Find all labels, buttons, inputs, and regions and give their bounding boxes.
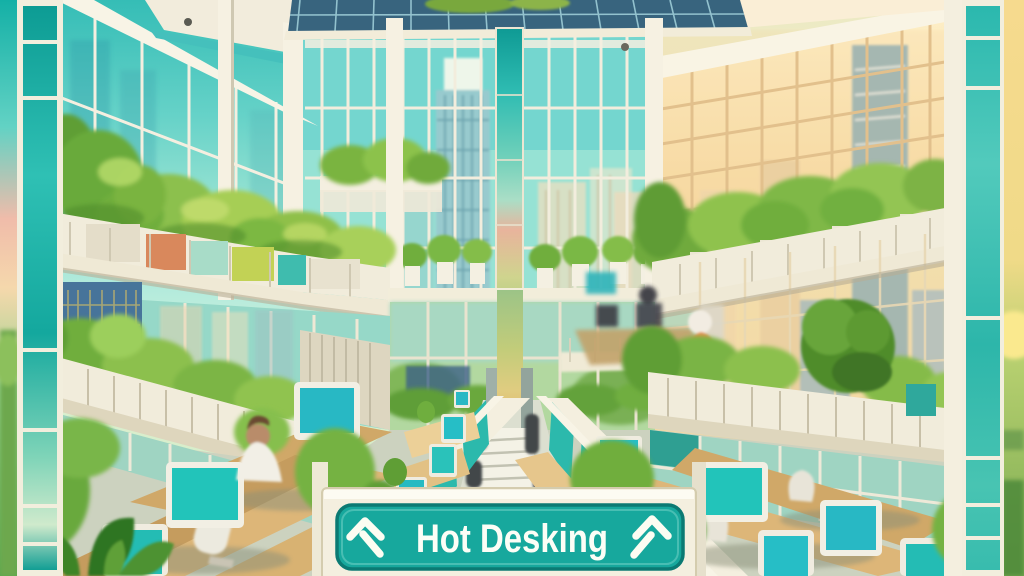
svg-text:Hot Desking: Hot Desking bbox=[416, 517, 608, 561]
